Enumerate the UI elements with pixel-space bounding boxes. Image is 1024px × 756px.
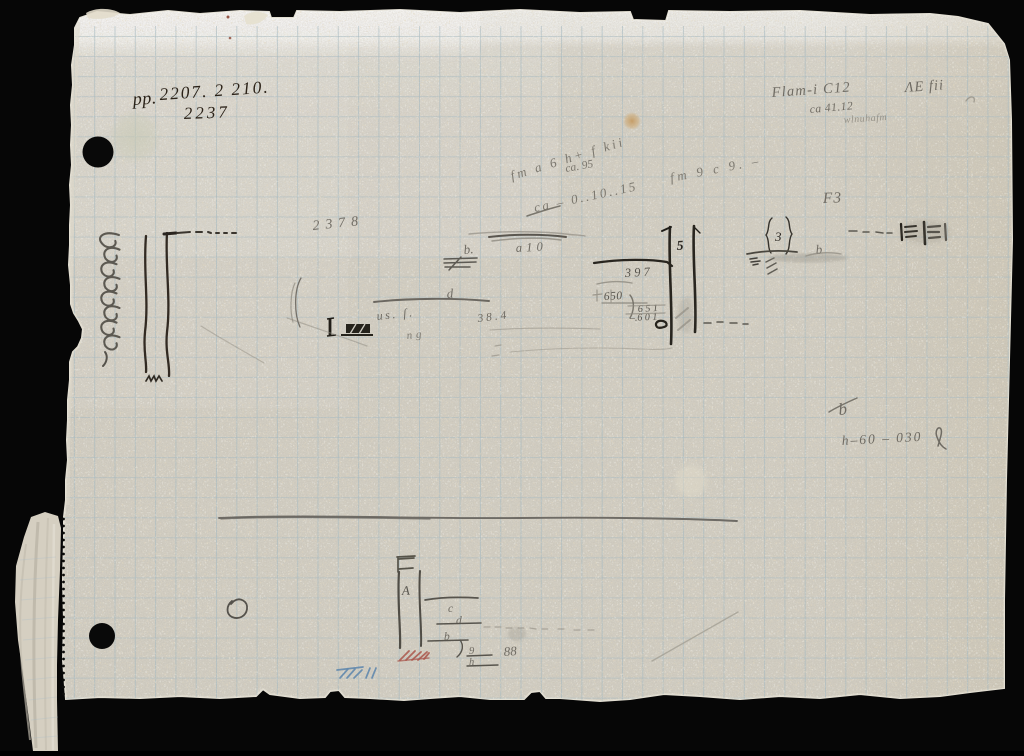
svg-text:3: 3: [774, 229, 782, 244]
svg-text:F3: F3: [822, 189, 843, 207]
svg-text:A: A: [400, 583, 410, 598]
svg-text:3 9 7: 3 9 7: [623, 265, 650, 280]
svg-text:2237: 2237: [183, 102, 230, 123]
svg-text:a 1 0: a 1 0: [515, 240, 543, 255]
svg-text:5: 5: [676, 238, 684, 253]
svg-text:650: 650: [604, 290, 623, 303]
svg-text:c: c: [448, 603, 453, 615]
svg-text:d: d: [456, 615, 462, 627]
svg-text:n g: n g: [406, 328, 422, 342]
svg-text:ΛE fii: ΛE fii: [902, 77, 944, 96]
svg-text:b.: b.: [463, 241, 474, 257]
svg-text:88: 88: [503, 643, 518, 659]
svg-text:pp.: pp.: [130, 87, 157, 109]
